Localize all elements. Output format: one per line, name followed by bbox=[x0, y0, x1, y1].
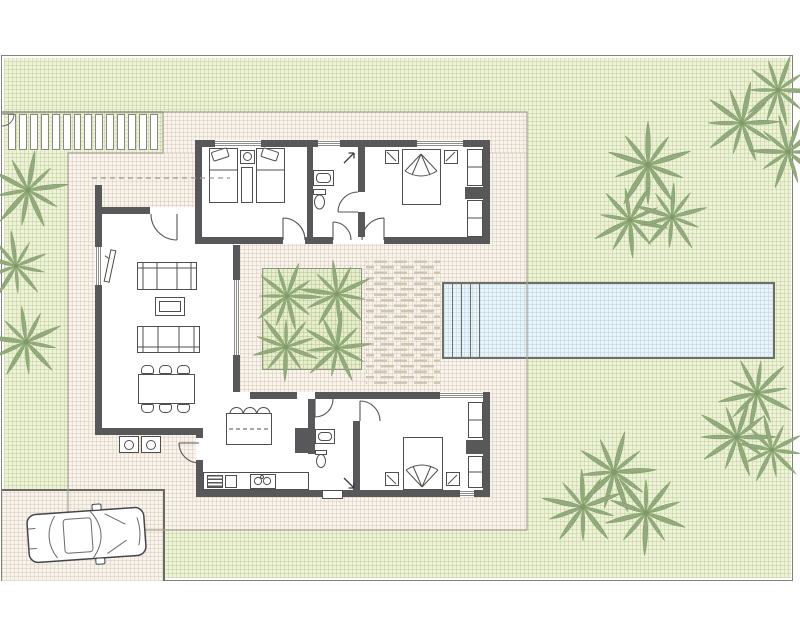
window bbox=[215, 141, 261, 146]
entrance-step bbox=[322, 490, 343, 499]
wall-segment bbox=[358, 147, 365, 192]
dining-chair bbox=[177, 365, 190, 374]
wall-segment bbox=[95, 428, 200, 435]
wall-segment bbox=[250, 392, 297, 399]
wardrobe bbox=[468, 402, 483, 438]
wall-segment bbox=[195, 140, 202, 244]
wall-segment bbox=[196, 490, 323, 497]
window bbox=[318, 141, 340, 146]
wall-segment bbox=[196, 428, 203, 438]
washbasin bbox=[318, 432, 332, 441]
oven bbox=[207, 475, 223, 488]
wardrobe bbox=[468, 456, 483, 488]
twin-bed bbox=[256, 148, 285, 203]
dining-chair bbox=[141, 365, 154, 374]
bedside-rug bbox=[241, 167, 253, 203]
coffee-table-inner bbox=[159, 301, 181, 312]
wall-segment bbox=[305, 237, 333, 244]
double-bed bbox=[403, 437, 443, 490]
wall-pier bbox=[295, 428, 315, 453]
counter-unit bbox=[225, 475, 237, 488]
wall-segment bbox=[233, 355, 240, 392]
dining-chair bbox=[159, 404, 172, 413]
lamp-icon bbox=[243, 152, 252, 161]
window bbox=[417, 141, 463, 146]
kitchen-island bbox=[226, 413, 272, 445]
site-plan bbox=[0, 0, 800, 640]
wall-segment bbox=[483, 392, 490, 497]
wall-segment bbox=[102, 207, 150, 214]
wall-pier bbox=[465, 187, 490, 199]
dining-chair bbox=[159, 365, 172, 374]
wall-segment bbox=[474, 490, 490, 497]
sofa bbox=[137, 326, 200, 353]
wall-segment bbox=[340, 140, 417, 147]
wall-segment bbox=[95, 185, 102, 247]
wall-segment bbox=[353, 421, 360, 497]
window bbox=[460, 491, 474, 496]
double-bed bbox=[402, 149, 441, 205]
wall-segment bbox=[261, 140, 318, 147]
nightstand bbox=[385, 150, 399, 164]
toilet-tank bbox=[315, 450, 327, 455]
nightstand bbox=[385, 472, 399, 486]
wall-segment bbox=[342, 490, 460, 497]
nightstand bbox=[446, 472, 460, 486]
wardrobe bbox=[467, 149, 483, 186]
bbq-burner-icon bbox=[146, 440, 156, 450]
wall-segment bbox=[315, 392, 440, 399]
dining-table bbox=[138, 374, 195, 404]
wardrobe bbox=[467, 200, 483, 237]
wall-segment bbox=[195, 237, 283, 244]
dining-chair bbox=[141, 404, 154, 413]
window bbox=[96, 247, 101, 285]
bbq-burner-icon bbox=[124, 440, 134, 450]
hob bbox=[250, 474, 276, 489]
twin-bed bbox=[209, 148, 238, 203]
sofa bbox=[137, 262, 197, 290]
wall-pier bbox=[466, 440, 483, 454]
wall-segment bbox=[358, 212, 365, 237]
house bbox=[0, 0, 800, 640]
wall-segment bbox=[95, 285, 102, 428]
toilet-tank bbox=[313, 189, 326, 195]
wall-segment bbox=[384, 237, 490, 244]
sliding-glass-door bbox=[234, 280, 239, 355]
dining-chair bbox=[177, 404, 190, 413]
wall-segment bbox=[233, 245, 240, 280]
nightstand bbox=[444, 150, 458, 164]
washbasin bbox=[316, 173, 331, 183]
window bbox=[440, 393, 483, 398]
